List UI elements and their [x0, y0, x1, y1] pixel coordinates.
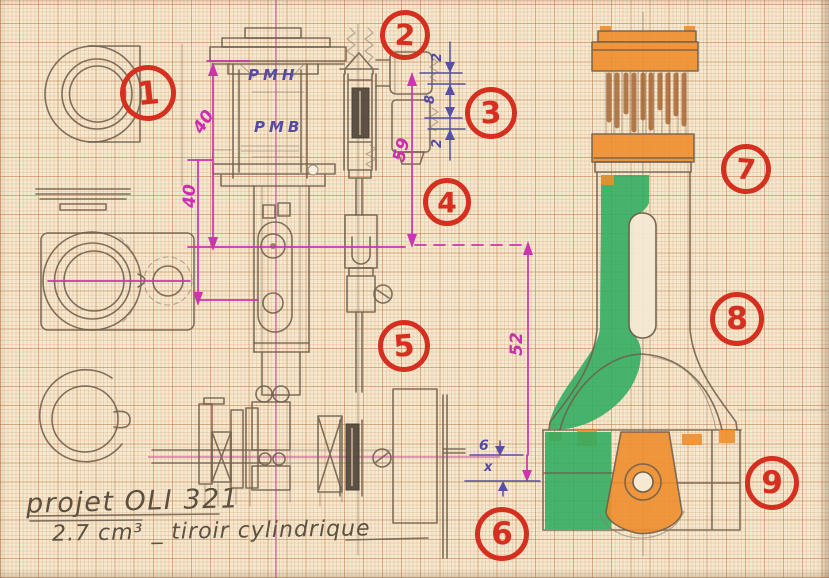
dimension-52: 52: [507, 332, 527, 356]
colored-view-cylinder-unit: [543, 26, 741, 538]
dimension-2-top: 2: [430, 53, 445, 62]
dimension-x-mark: x: [484, 460, 492, 475]
dimension-2-bottom: 2: [430, 139, 445, 148]
dimension-40-lower: 40: [180, 184, 200, 208]
callout-circle-6: 6: [475, 507, 529, 561]
cooling-fins: [606, 72, 686, 134]
graph-paper-sheet: 1 2 3 4 5 6 7 8 9 PMH PMB 40 40 59 52 2 …: [0, 0, 829, 578]
project-title: projet OLI 321: [26, 483, 240, 520]
left-view-crankcase-top: [41, 232, 194, 330]
label-pmh-top-dead-center: PMH: [248, 66, 298, 84]
callout-circle-4: 4: [423, 178, 471, 226]
dimension-6: 6: [479, 438, 489, 454]
label-pmb-bottom-dead-center: PMB: [254, 118, 303, 136]
left-view-bearing-ring: [40, 370, 130, 462]
left-view-crankshaft-side: [152, 398, 268, 488]
left-view-main-bearing: [36, 46, 141, 210]
cross-section-connecting-rod: [252, 186, 309, 490]
dimension-8: 8: [423, 95, 438, 104]
callout-circle-8: 8: [710, 292, 764, 346]
